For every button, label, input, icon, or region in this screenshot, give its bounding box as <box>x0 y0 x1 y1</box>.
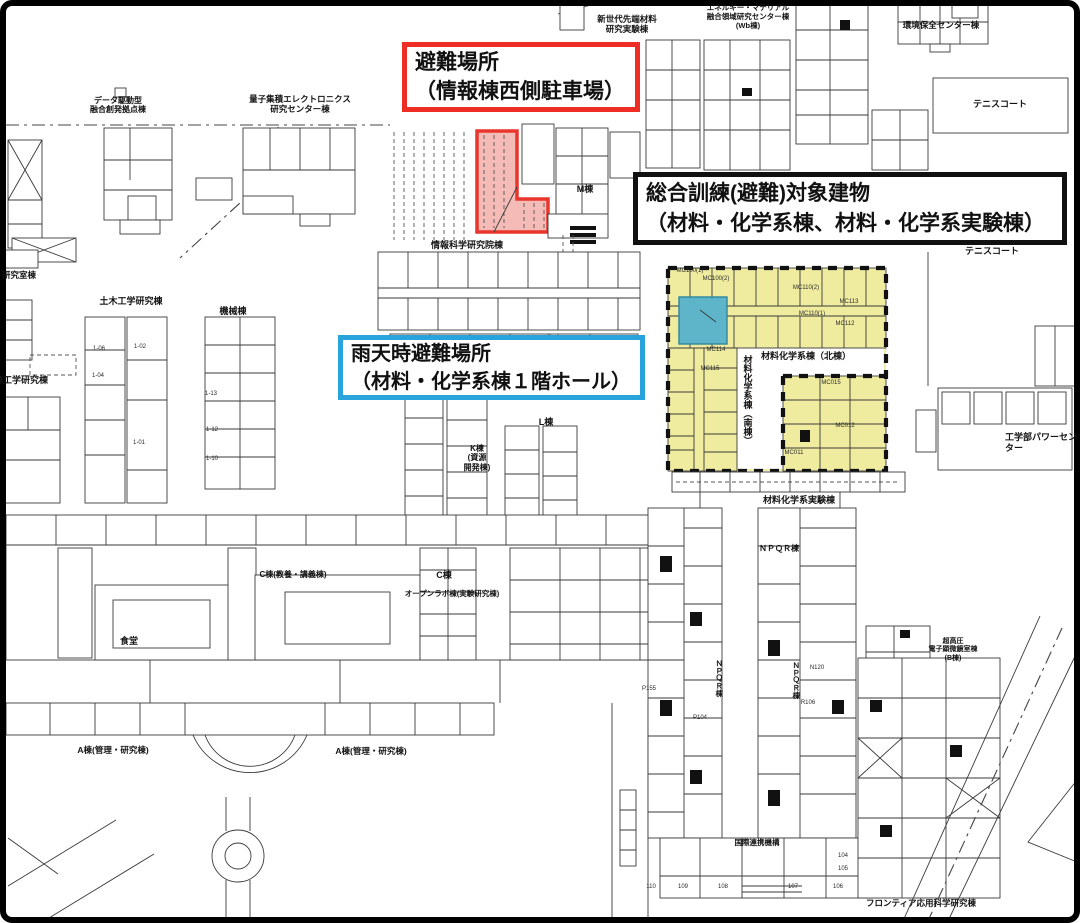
rainy-day-site-callout: 雨天時避難場所 （材料・化学系棟１階ホール） <box>338 335 645 400</box>
map-label: 104 <box>838 853 848 860</box>
map-label: MC011 <box>785 450 804 457</box>
map-label: MC112 <box>836 321 855 328</box>
map-label: 1-02 <box>134 344 146 351</box>
map-label: N120 <box>810 665 824 672</box>
rainy-day-site-line1: 雨天時避難場所 <box>351 340 632 368</box>
map-label: 土木工学研究棟 <box>99 296 162 307</box>
map-label: MC110(2) <box>793 285 819 292</box>
rainy-day-site-line2: （材料・化学系棟１階ホール） <box>351 368 632 396</box>
map-label: フロンティア応用科学研究棟 <box>866 898 976 908</box>
map-label: 109 <box>678 884 688 891</box>
map-label: MC114 <box>707 347 726 354</box>
roundabout <box>212 797 264 921</box>
parking-stripes <box>394 132 464 240</box>
rainy-hall-highlight <box>679 297 727 344</box>
map-label: ＮＰＱＲ棟 <box>759 544 799 553</box>
map-label: テニスコート <box>965 246 1019 257</box>
map-label: MC113 <box>840 299 859 306</box>
map-label: 国際連携機構 <box>735 839 780 848</box>
map-label: 機械棟 <box>219 306 246 317</box>
map-label: MC015 <box>821 380 840 387</box>
training-target-line2: （材料・化学系棟、材料・化学系実験棟） <box>646 209 1054 238</box>
map-label: R106 <box>801 700 815 707</box>
central-complex <box>6 515 656 703</box>
map-label: 研究室棟 <box>2 270 36 280</box>
map-label: C棟 <box>436 570 452 581</box>
map-label: 情報科学研究院棟 <box>431 240 503 251</box>
map-label: 環境保全センター棟 <box>903 20 980 30</box>
map-label: 1-04 <box>92 373 104 380</box>
map-label: 量子集積エレクトロニクス 研究センター棟 <box>249 94 351 114</box>
map-drawing <box>0 0 1080 923</box>
map-label: 1-10 <box>206 456 218 463</box>
map-label: データ駆動型 融合創発拠点棟 <box>90 96 146 115</box>
map-label: オープンラボ棟(実験研究棟) <box>405 590 500 599</box>
map-label: 107 <box>788 884 798 891</box>
map-label: P104 <box>693 715 707 722</box>
training-target-line1: 総合訓練(避難)対象建物 <box>646 179 1054 208</box>
map-label: MC100(2) <box>703 276 730 283</box>
map-label: 食堂 <box>120 636 138 647</box>
map-label: M棟 <box>577 184 594 195</box>
campus-map: データ駆動型 融合創発拠点棟量子集積エレクトロニクス 研究センター棟新世代先端材… <box>0 0 1080 923</box>
map-label: L棟 <box>539 417 554 428</box>
a-building-strip <box>6 703 494 773</box>
map-label: C棟(教養・講義棟) <box>259 570 326 579</box>
map-label: 新世代先端材料 研究実験棟 <box>597 14 657 34</box>
map-label: 106 <box>833 884 843 891</box>
map-label: 1-06 <box>93 346 105 353</box>
roads-southwest <box>8 820 154 921</box>
evacuation-site-line2: （情報棟西側駐車場） <box>415 77 627 106</box>
map-label: 境工学研究棟 <box>0 375 48 386</box>
map-label: 材料化学系棟（北棟） <box>761 351 851 362</box>
map-label: MC100(1) <box>677 268 704 275</box>
map-label: 材料化学系棟（南棟） <box>743 355 752 445</box>
map-label: テニスコート <box>973 99 1027 110</box>
training-target-callout: 総合訓練(避難)対象建物 （材料・化学系棟、材料・化学系実験棟） <box>633 172 1067 245</box>
buildings-northwest <box>0 88 355 360</box>
map-label: K棟 (資源 開発棟) <box>464 444 491 472</box>
map-label: MC115 <box>701 366 720 373</box>
map-label: 1-13 <box>205 391 217 398</box>
map-label: A棟(管理・研究棟) <box>77 745 148 755</box>
map-label: エネルギー・マテリアル 融合領域研究センター棟 (Wb棟) <box>707 4 790 31</box>
map-label: 105 <box>838 866 848 873</box>
map-label: 110 <box>646 884 656 891</box>
map-label: A棟(管理・研究棟) <box>335 746 406 756</box>
evacuation-site-line1: 避難場所 <box>415 48 627 77</box>
map-label: P155 <box>642 686 656 693</box>
evacuation-site-callout: 避難場所 （情報棟西側駐車場） <box>402 42 640 112</box>
map-label: 108 <box>718 884 728 891</box>
map-label: 超高圧 電子顕微鏡室棟 (B棟) <box>929 638 978 663</box>
map-label: 材料化学系実験棟 <box>763 495 835 506</box>
map-label: 1-01 <box>133 440 145 447</box>
map-label: ＮＰＱＲ棟 <box>715 659 723 697</box>
map-label: 1-12 <box>206 427 218 434</box>
map-label: MC110(1) <box>799 311 825 318</box>
map-label: 工学部パワーセンター <box>1005 432 1080 453</box>
road-south-center <box>612 703 648 921</box>
map-label: MC012 <box>835 423 854 430</box>
map-label: ＮＰＱＲ棟 <box>792 661 800 699</box>
